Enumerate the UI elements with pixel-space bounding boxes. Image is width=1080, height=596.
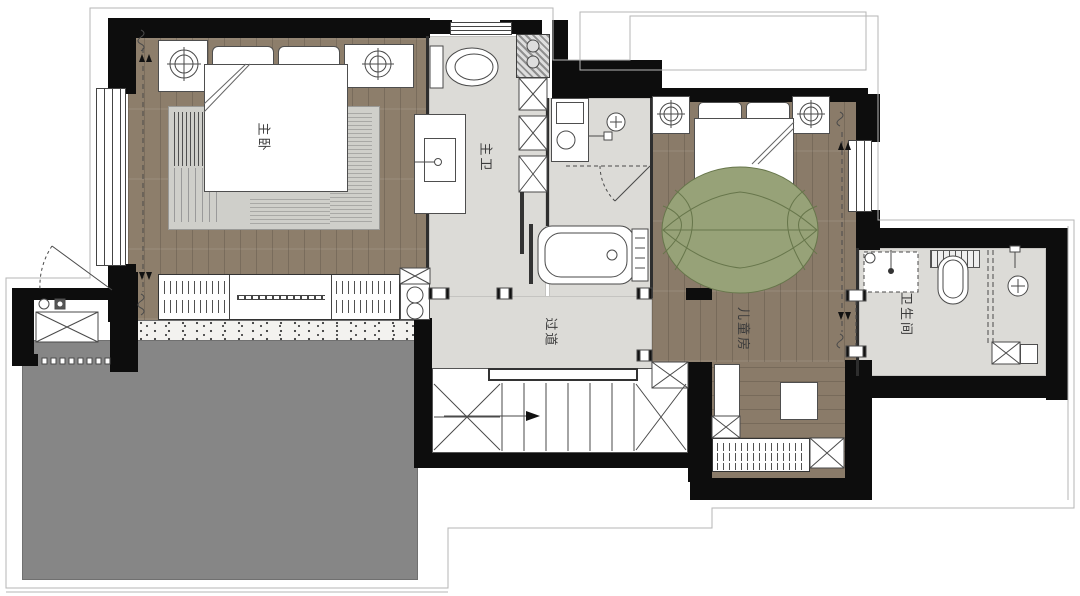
glass-partition [988,250,993,346]
shower-area [864,250,918,292]
room-label-bathroom: 卫生间 [898,292,917,337]
room-label-master-bath: 主卫 [478,142,497,172]
duvet-fold [752,122,794,164]
toilet-icon [938,256,968,304]
room-label-corridor: 过道 [543,317,562,347]
bathtub [538,226,648,284]
room-label-master-bedroom: 主卧 [256,122,275,152]
washing-machine-knobs [527,40,539,68]
stair-treads [434,383,686,451]
floor-plan: 主卧 主卫 过道 儿童房 卫生间 [0,0,1080,596]
laundry-basin [557,131,575,149]
room-label-kids-room: 儿童房 [735,307,754,352]
duvet-fold [204,64,250,112]
toilet-icon [430,46,498,88]
glass-screen [520,192,533,284]
kids-round-rug [662,167,818,293]
door-jamb [429,288,866,361]
side-cabinet-bins [407,287,423,319]
plan-linework [0,0,1080,596]
